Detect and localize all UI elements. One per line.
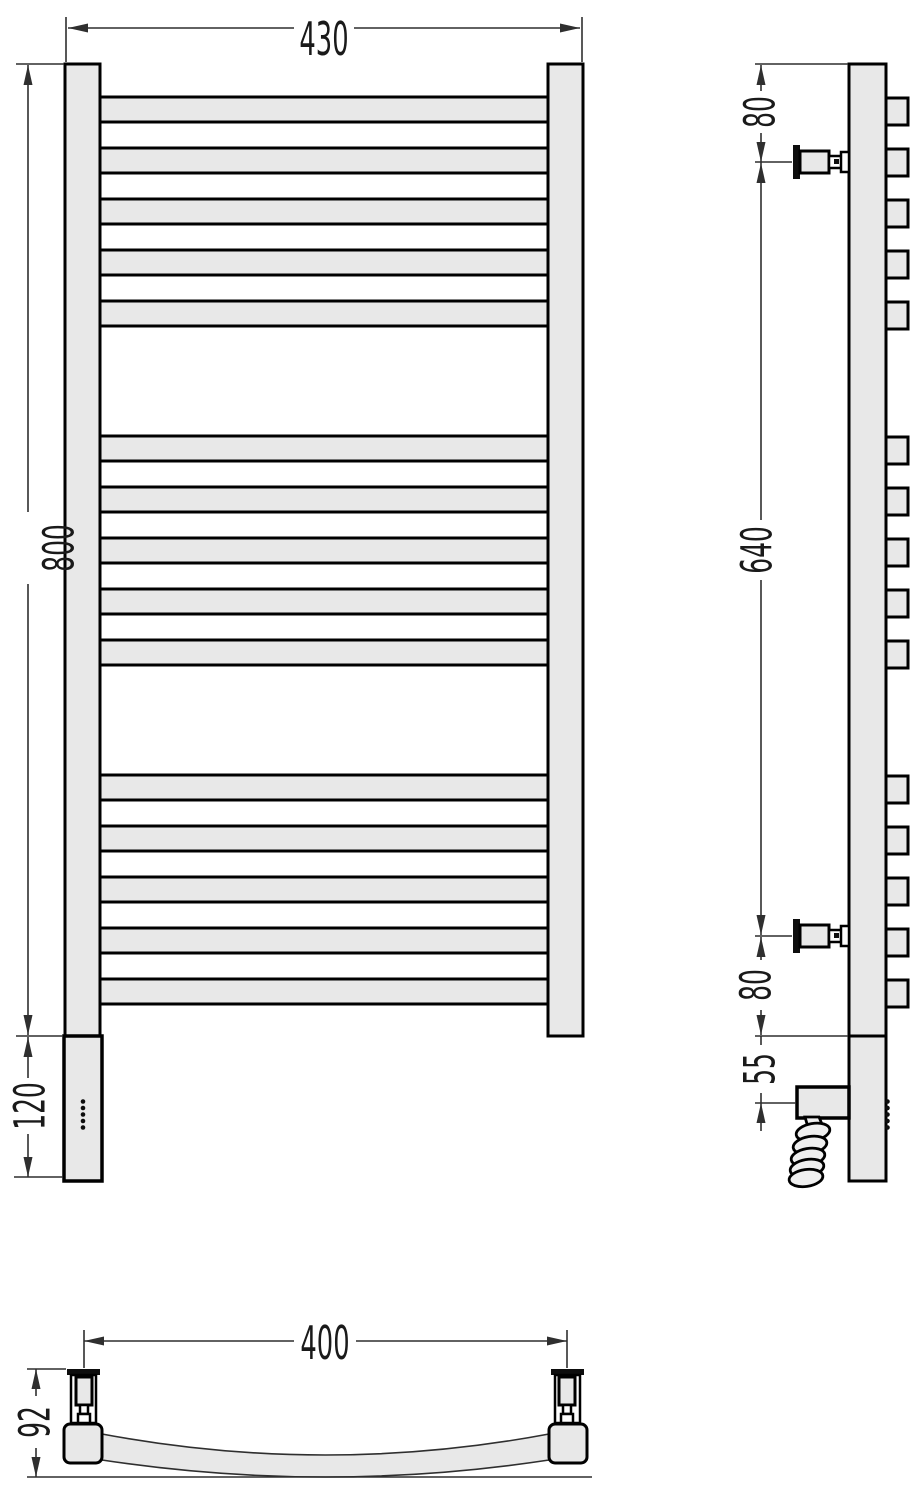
rung-stub (884, 980, 908, 1007)
wall-bracket-top (793, 145, 849, 179)
arrowhead (757, 163, 766, 183)
bracket-pin (834, 933, 839, 938)
front-rungs (99, 97, 549, 1004)
bracket-body (800, 151, 829, 173)
dim-label-front-bottom: 120 (10, 1082, 53, 1130)
dim-label-side-span: 640 (737, 526, 780, 574)
rung (99, 928, 549, 953)
rung (99, 640, 549, 665)
arrowhead (24, 65, 33, 85)
dim-label-side-heater: 55 (740, 1053, 783, 1085)
rung-stub (884, 98, 908, 125)
dim-label-side-bottom: 80 (736, 969, 779, 1001)
bracket-piston (559, 1377, 575, 1405)
bracket-piston (76, 1377, 92, 1405)
bottom-post-right (549, 1424, 587, 1463)
rung-stub (884, 488, 908, 515)
dim-label-side-top: 80 (740, 96, 783, 128)
arrowhead (757, 65, 766, 85)
dim-label-front-width: 430 (299, 16, 348, 62)
rung-stub (884, 878, 908, 905)
rung-stub (884, 776, 908, 803)
rung (99, 538, 549, 563)
bottom-bracket-right (551, 1369, 584, 1423)
arrowhead (757, 915, 766, 935)
rung-stub (884, 302, 908, 329)
drawing-canvas: 430 800 120 80 640 80 55 400 92 (0, 0, 924, 1500)
rung (99, 589, 549, 614)
arrowhead (84, 1337, 104, 1346)
arrowhead (68, 24, 88, 33)
rung-stub (884, 200, 908, 227)
bracket-pin (834, 159, 839, 164)
front-post-right (548, 64, 583, 1036)
bracket-neck (563, 1405, 571, 1414)
rung-stub (884, 149, 908, 176)
dim-label-bottom-span: 400 (300, 1320, 349, 1366)
rung-stub (884, 641, 908, 668)
rung-stub (884, 929, 908, 956)
front-view (64, 64, 583, 1181)
rung-stub (884, 590, 908, 617)
rung (99, 148, 549, 173)
rung (99, 877, 549, 902)
bottom-bracket-left (67, 1369, 100, 1423)
rung-stub (884, 539, 908, 566)
bracket-foot (78, 1414, 90, 1423)
bracket-foot (841, 926, 849, 946)
rung (99, 97, 549, 122)
side-rung-stubs (884, 98, 908, 1007)
bracket-neck (80, 1405, 88, 1414)
wall-bracket-bottom (793, 919, 849, 953)
bracket-body (800, 925, 829, 947)
dim-label-front-height: 800 (39, 524, 82, 572)
bracket-foot (841, 152, 849, 172)
side-view (788, 64, 908, 1189)
arrowhead (757, 1103, 766, 1123)
arrowhead (560, 24, 580, 33)
rung (99, 301, 549, 326)
heater-housing-side (797, 1087, 849, 1118)
rung (99, 979, 549, 1004)
arrowhead (32, 1369, 41, 1389)
arrowhead (24, 1157, 33, 1177)
arrowhead (757, 937, 766, 957)
arrowhead (24, 1015, 33, 1035)
rung (99, 436, 549, 461)
bottom-post-left (64, 1424, 102, 1463)
arrowhead (547, 1337, 567, 1346)
rung (99, 250, 549, 275)
arrowhead (757, 1015, 766, 1035)
rung-stub (884, 251, 908, 278)
arrowhead (32, 1457, 41, 1477)
arrowhead (757, 142, 766, 162)
power-cable-spiral (788, 1117, 831, 1189)
rung (99, 775, 549, 800)
rung (99, 487, 549, 512)
rung (99, 199, 549, 224)
technical-drawing (0, 0, 924, 1500)
arrowhead (24, 1037, 33, 1057)
dimension-lines (14, 17, 848, 1477)
rung (99, 826, 549, 851)
rung-stub (884, 827, 908, 854)
dim-label-bottom-depth: 92 (15, 1406, 58, 1438)
bracket-foot (561, 1414, 573, 1423)
rung-stub (884, 437, 908, 464)
bottom-view (64, 1369, 587, 1477)
side-rail (849, 64, 886, 1181)
